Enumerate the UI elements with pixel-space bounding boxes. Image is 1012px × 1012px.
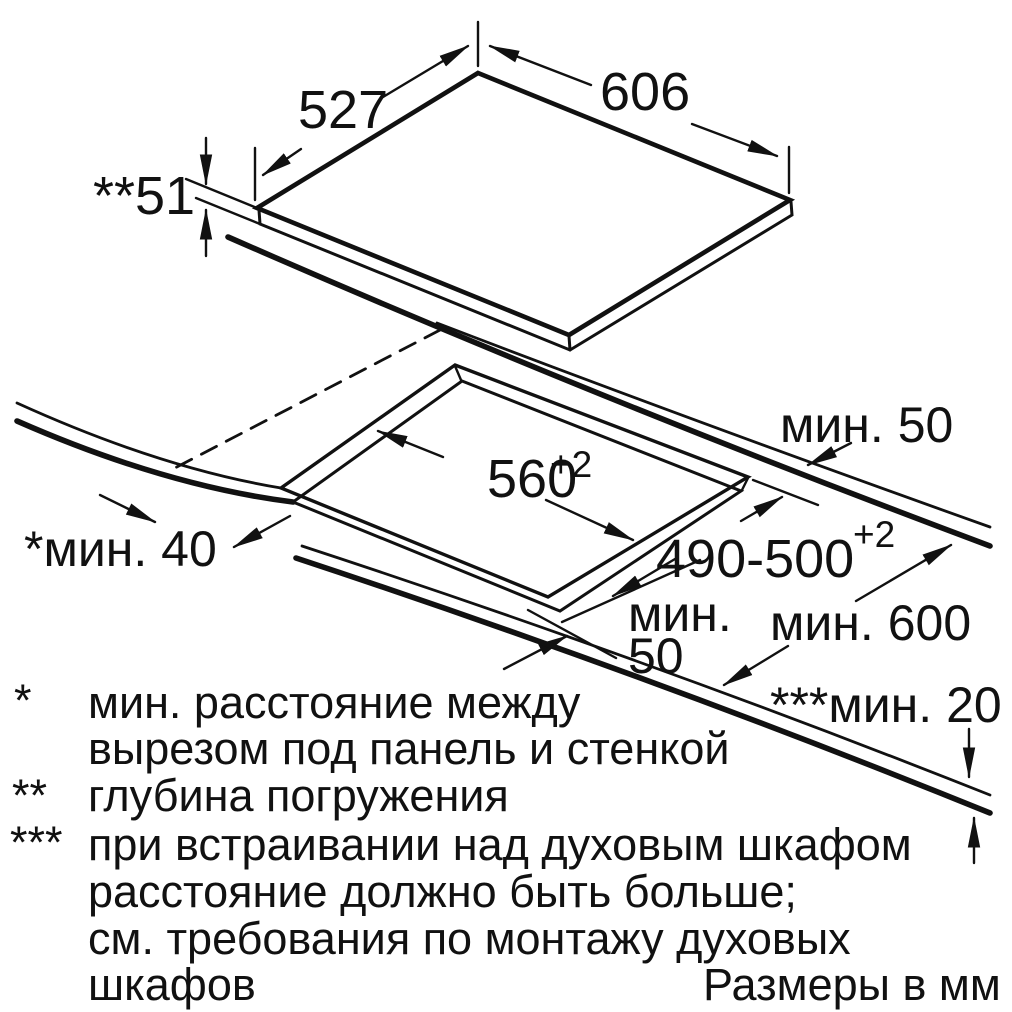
label-panel-depth: 527 [298,80,388,140]
side-edge-thin [17,403,281,488]
label-panel-width: 606 [600,62,690,122]
label-cutout-depth-tolerance: +2 [853,514,895,555]
label-side-clearance: *мин. 40 [24,521,217,577]
units-note: Размеры в мм [703,959,1001,1010]
thickness-extension-top [186,179,257,208]
label-cutout-depth: 490-500 [656,529,854,589]
extension-right-corner [753,480,818,505]
footnote-line-1b: вырезом под панель и стенкой [88,723,730,774]
footnote-marker-1: * [14,675,32,726]
footnote-line-3b: расстояние должно быть больше; [88,866,797,917]
footnote-line-1a: мин. расстояние между [88,677,581,728]
label-oven-clearance: ***мин. 20 [770,677,1002,733]
dim-min40-arrow-left [234,516,290,547]
label-wall-clearance-back: мин. 50 [780,397,953,453]
footnote-marker-3: *** [10,817,63,868]
footnote-line-3c: см. требования по монтажу духовых [88,913,851,964]
dim-min40-arrow-right [100,495,155,522]
label-front-gap-value: 50 [628,628,684,684]
dim-606-segment-left [490,46,591,85]
footnote-line-3a: при встраивании над духовым шкафом [88,819,912,870]
footnote-marker-2: ** [12,770,47,821]
wall-line-back [228,237,990,546]
label-panel-thickness: **51 [93,166,195,226]
dim-606-segment-right [692,124,777,156]
cooktop-panel-lip-corner [569,336,570,350]
dim-490-segment-upper [741,497,782,521]
label-cutout-width-tolerance: +2 [550,444,592,485]
label-worktop-min-depth: мин. 600 [770,595,971,651]
side-wall-thick [17,421,293,502]
footnote-line-3d: шкафов [88,959,256,1010]
projection-dashed-line [173,330,440,469]
footnote-line-2a: глубина погружения [88,770,509,821]
cooktop-panel-lip [259,202,792,350]
installation-diagram: 527 606 **51 мин. 50 *мин. 40 560 +2 490… [0,0,1012,1012]
dim-527-segment-lower [263,149,301,175]
installation-diagram-page: 527 606 **51 мин. 50 *мин. 40 560 +2 490… [0,0,1012,1012]
dim-560-segment-left [378,431,443,457]
